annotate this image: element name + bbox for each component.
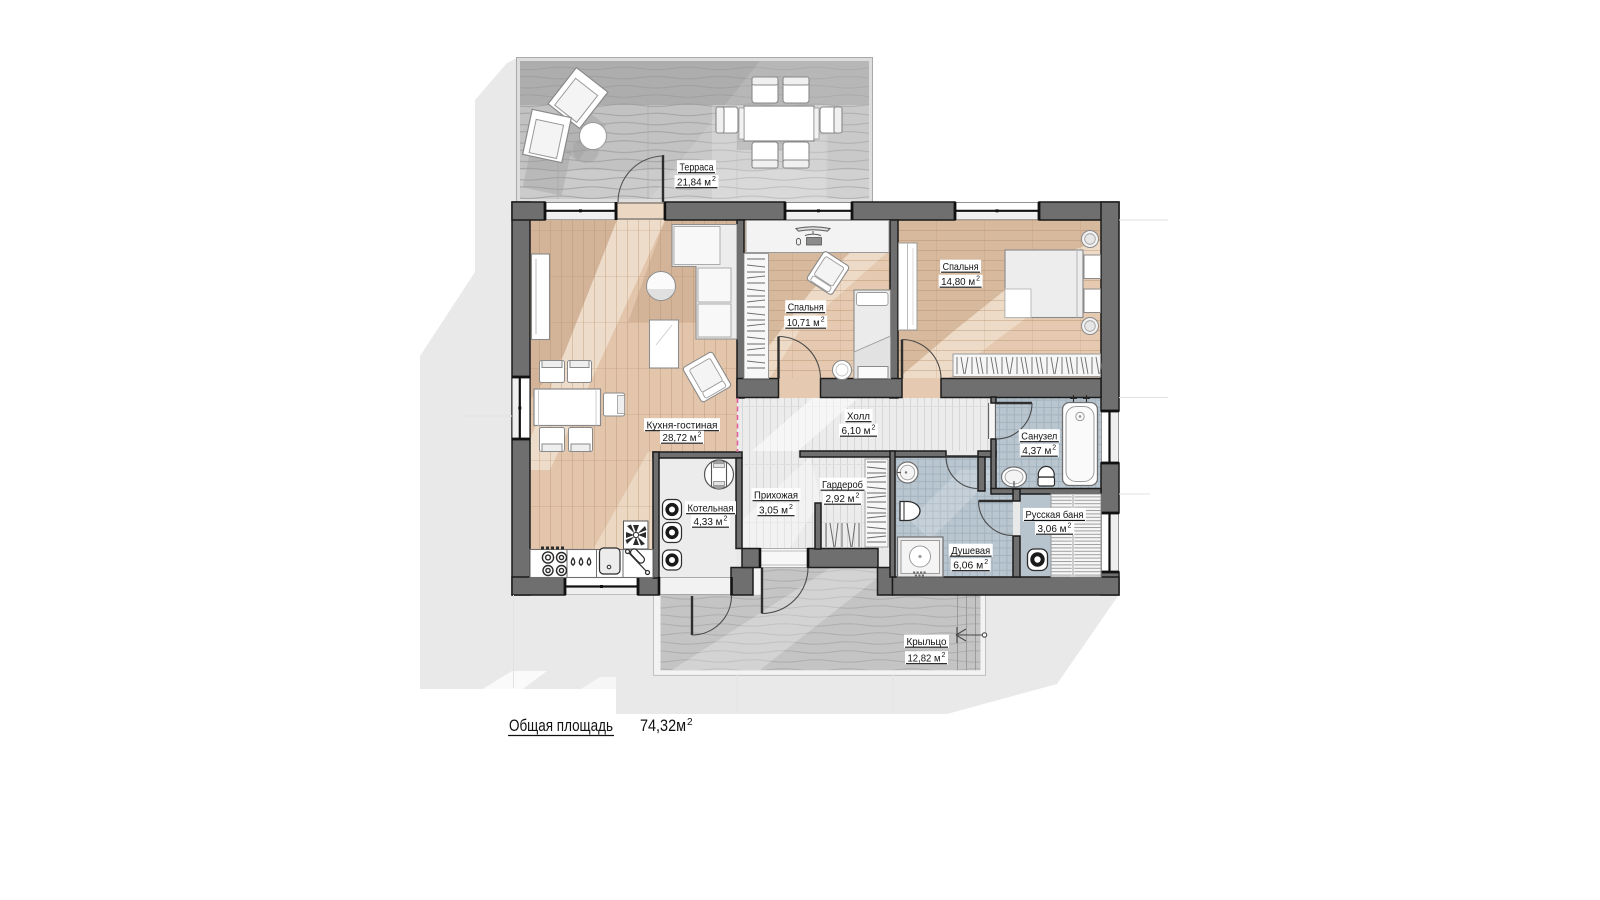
svg-text:14,80 м: 14,80 м (941, 276, 975, 288)
svg-text:2: 2 (984, 559, 988, 566)
svg-text:2: 2 (724, 516, 728, 523)
svg-text:Спальня: Спальня (788, 302, 824, 314)
svg-text:2: 2 (1068, 523, 1072, 530)
svg-text:Общая площадь: Общая площадь (509, 717, 613, 735)
svg-text:Крыльцо: Крыльцо (907, 636, 947, 648)
svg-text:21,84 м: 21,84 м (677, 177, 711, 189)
svg-text:2: 2 (821, 317, 825, 324)
svg-text:Душевая: Душевая (951, 545, 990, 557)
svg-text:Терраса: Терраса (680, 162, 714, 174)
svg-text:2: 2 (942, 652, 946, 659)
svg-text:2,92 м: 2,92 м (826, 493, 855, 505)
svg-text:2: 2 (976, 276, 980, 283)
svg-text:2: 2 (1052, 445, 1056, 452)
svg-text:10,71 м: 10,71 м (787, 317, 820, 329)
svg-text:Спальня: Спальня (943, 261, 979, 273)
svg-text:2: 2 (872, 425, 876, 432)
svg-text:Санузел: Санузел (1021, 431, 1057, 443)
svg-text:74,32м: 74,32м (640, 717, 686, 735)
svg-text:28,72 м: 28,72 м (663, 432, 697, 444)
svg-text:6,10 м: 6,10 м (842, 425, 871, 437)
svg-text:2: 2 (687, 717, 693, 728)
svg-text:Котельная: Котельная (688, 503, 734, 515)
svg-text:Русская баня: Русская баня (1026, 509, 1084, 521)
svg-text:2: 2 (856, 493, 860, 500)
svg-text:Холл: Холл (847, 411, 870, 423)
svg-text:6,06 м: 6,06 м (953, 560, 983, 572)
svg-text:4,33 м: 4,33 м (694, 516, 723, 528)
svg-text:4,37 м: 4,37 м (1022, 445, 1051, 457)
svg-text:3,06 м: 3,06 м (1038, 523, 1067, 535)
svg-text:Гардероб: Гардероб (822, 479, 863, 491)
svg-text:Кухня-гостиная: Кухня-гостиная (647, 420, 718, 432)
svg-text:3,05 м: 3,05 м (759, 505, 788, 517)
svg-text:2: 2 (789, 504, 793, 511)
svg-text:2: 2 (698, 432, 702, 439)
svg-text:Прихожая: Прихожая (754, 490, 798, 502)
svg-text:2: 2 (712, 176, 716, 183)
svg-text:12,82 м: 12,82 м (908, 653, 941, 665)
